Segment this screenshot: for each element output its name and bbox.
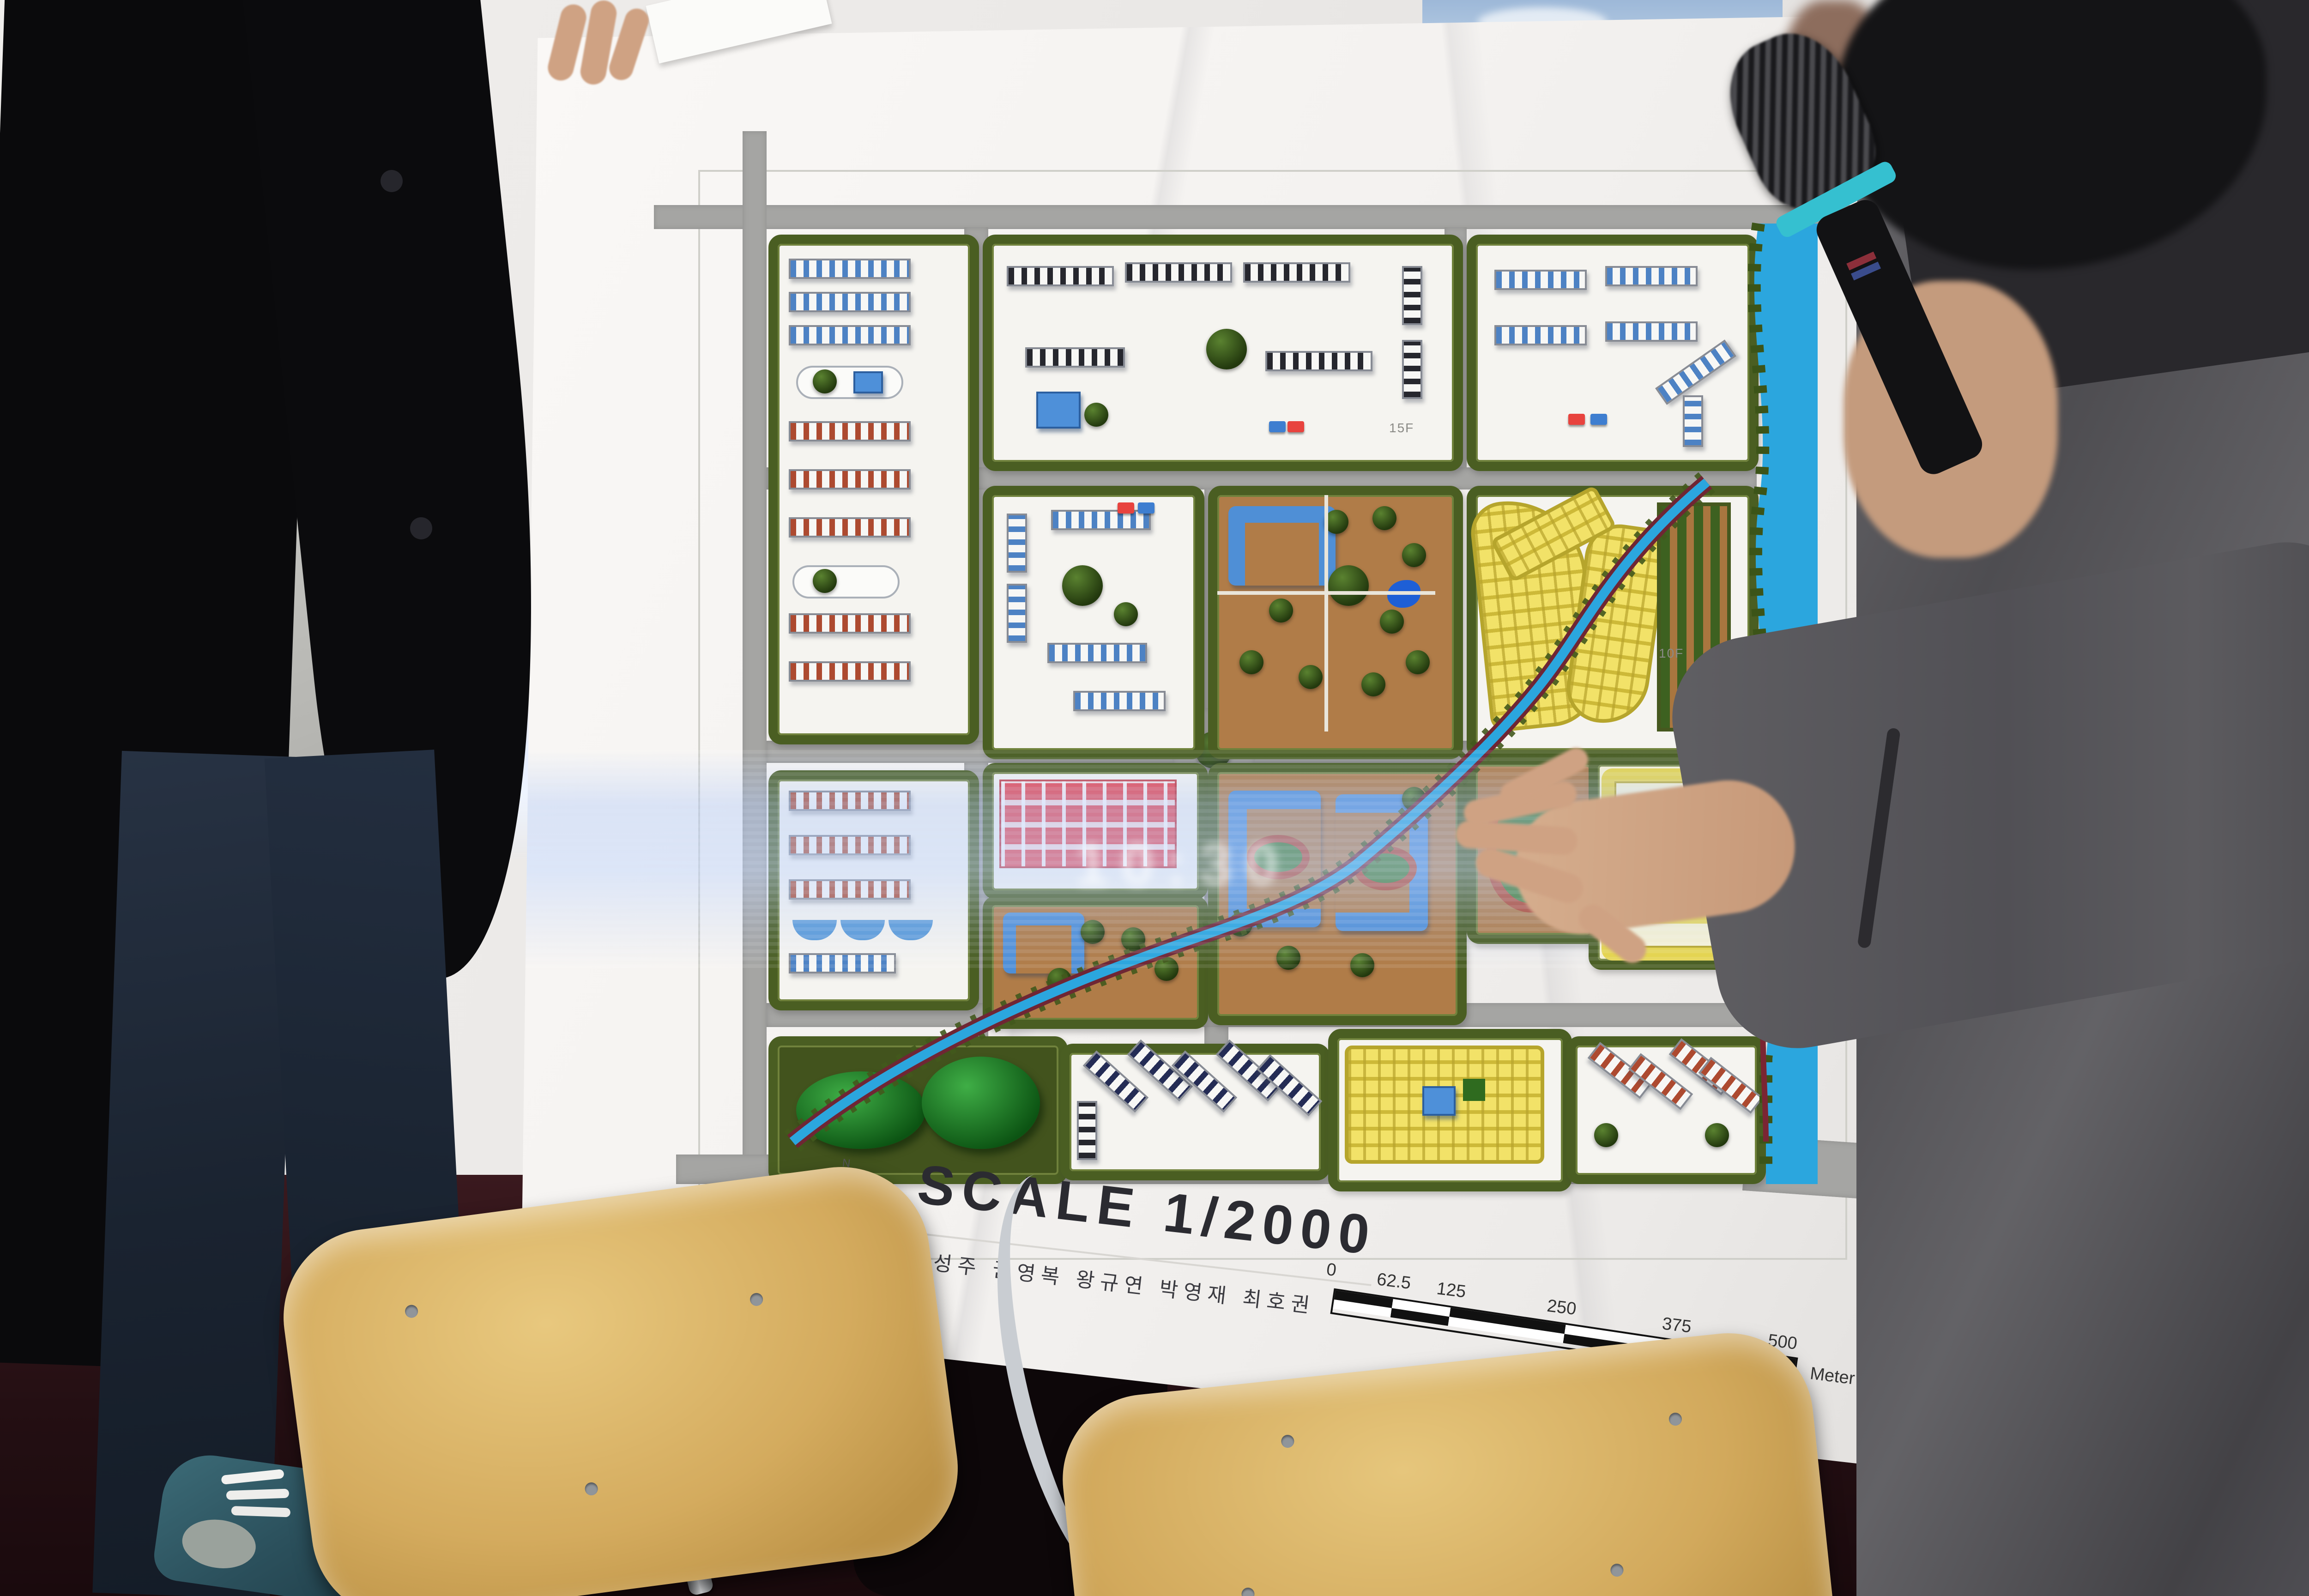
running-track — [1247, 835, 1310, 879]
building-slab — [789, 421, 911, 441]
building-slab — [789, 879, 911, 900]
tree-icon — [1081, 920, 1105, 944]
tree-icon — [1705, 1123, 1729, 1147]
green-hill — [796, 1071, 925, 1149]
block-southeast — [1566, 1036, 1766, 1184]
seat-screw — [749, 1292, 763, 1306]
building-slab — [789, 259, 911, 279]
building-slab — [1402, 340, 1422, 399]
scale-label-375: 375 — [1661, 1314, 1692, 1338]
building-slab — [1073, 691, 1166, 711]
tree-icon — [1239, 650, 1263, 674]
blue-building-cube — [1036, 392, 1081, 429]
tree-icon — [1062, 565, 1103, 606]
green-square — [1463, 1079, 1485, 1101]
road-left — [743, 131, 767, 1258]
tree-icon — [1206, 329, 1247, 369]
seat-screw — [1610, 1563, 1624, 1578]
building-slab — [1265, 351, 1372, 371]
car-red — [1287, 421, 1304, 432]
tree-icon — [1402, 543, 1426, 567]
block-midwest-residential — [983, 486, 1204, 759]
tree-icon — [1350, 953, 1374, 977]
tree-icon — [1328, 565, 1369, 606]
tree-icon — [1114, 602, 1138, 626]
building-slab — [1125, 262, 1232, 283]
sneaker-camo-patch — [179, 1515, 259, 1573]
blue-arc-building — [889, 920, 933, 940]
blue-u-building — [1003, 913, 1084, 973]
building-slab — [789, 953, 896, 973]
building-slab — [1025, 347, 1125, 368]
tree-icon — [1276, 946, 1300, 970]
car-blue — [1138, 502, 1154, 514]
seat-screw — [404, 1304, 418, 1318]
block-schools — [1208, 763, 1467, 1025]
blue-building-cube — [1422, 1086, 1456, 1116]
tree-icon — [1299, 665, 1323, 689]
sleeve-zipper-line — [1857, 727, 1901, 949]
left-coat-button — [381, 170, 403, 192]
car-blue — [1269, 421, 1286, 432]
building-slab — [789, 661, 911, 682]
block-small-park — [983, 896, 1208, 1029]
sneaker-lace — [221, 1469, 284, 1485]
building-slab — [789, 613, 911, 634]
block-red-commercial — [983, 763, 1208, 900]
tree-icon — [1269, 598, 1293, 623]
building-slab — [789, 292, 911, 312]
building-slab — [1605, 266, 1698, 286]
red-market-grid — [999, 780, 1177, 868]
sneaker-lace — [231, 1506, 290, 1517]
tree-icon — [1406, 650, 1430, 674]
building-slab — [1683, 395, 1703, 447]
map-label-15F: 15F — [1389, 423, 1414, 436]
tree-icon — [1594, 1123, 1618, 1147]
block-northeast — [1467, 235, 1759, 471]
block-west-residential — [768, 235, 979, 744]
tree-icon — [1154, 957, 1179, 981]
building-slab — [789, 325, 911, 345]
building-slab — [789, 469, 911, 490]
building-slab — [789, 835, 911, 855]
building-slab — [789, 517, 911, 538]
blue-arc-building — [792, 920, 837, 940]
running-track — [1354, 846, 1417, 890]
building-slab — [1243, 262, 1350, 283]
parking-oval — [796, 366, 903, 399]
building-slab — [1605, 321, 1698, 342]
building-slab — [1494, 325, 1587, 345]
tree-icon — [1361, 672, 1385, 696]
tree-icon — [813, 569, 837, 593]
tree-icon — [1228, 913, 1252, 937]
seat-screw — [1281, 1434, 1295, 1449]
tree-icon — [1047, 968, 1071, 992]
building-slab — [789, 791, 911, 811]
park-path — [1324, 495, 1328, 731]
tree-icon — [1084, 403, 1108, 427]
building-slab — [1494, 270, 1587, 290]
car-red — [1118, 502, 1134, 514]
scale-label-250: 250 — [1546, 1297, 1577, 1320]
map-label-10F: 10F — [1659, 648, 1684, 661]
scale-label-0: 0 — [1325, 1260, 1337, 1282]
seat-screw — [584, 1481, 598, 1496]
building-slab — [1402, 266, 1422, 325]
sneaker-lace — [226, 1489, 290, 1500]
building-slab — [1077, 1101, 1097, 1160]
tree-icon — [1121, 927, 1145, 951]
building-slab — [1007, 266, 1114, 286]
road-top — [654, 205, 1947, 229]
tree-icon — [1372, 506, 1396, 530]
photo-scene: 15F 10F 10:30 N — [0, 0, 2309, 1596]
tree-icon — [1402, 787, 1426, 811]
building-slab — [1051, 510, 1151, 530]
left-coat-button — [410, 517, 432, 539]
building-slab — [1007, 584, 1027, 643]
tree-icon — [813, 369, 837, 393]
scale-label-125: 125 — [1435, 1279, 1467, 1303]
blue-arc-building — [840, 920, 885, 940]
city-map: 15F 10F — [746, 209, 1818, 1184]
building-slab — [1007, 514, 1027, 573]
building-slab — [1047, 643, 1147, 663]
block-central-park — [1208, 486, 1463, 759]
car-blue — [1590, 414, 1607, 425]
blue-u-building — [1228, 506, 1336, 586]
tree-icon — [1380, 610, 1404, 634]
block-south-yellow — [1328, 1029, 1572, 1191]
seat-screw — [1668, 1412, 1683, 1427]
car-red — [1568, 414, 1585, 425]
seat-screw — [1241, 1587, 1255, 1596]
scale-label-62: 62.5 — [1376, 1270, 1412, 1294]
block-west-lower — [768, 770, 979, 1010]
blue-building-cube — [853, 371, 883, 393]
parking-oval — [792, 565, 900, 598]
green-hill — [922, 1057, 1040, 1149]
